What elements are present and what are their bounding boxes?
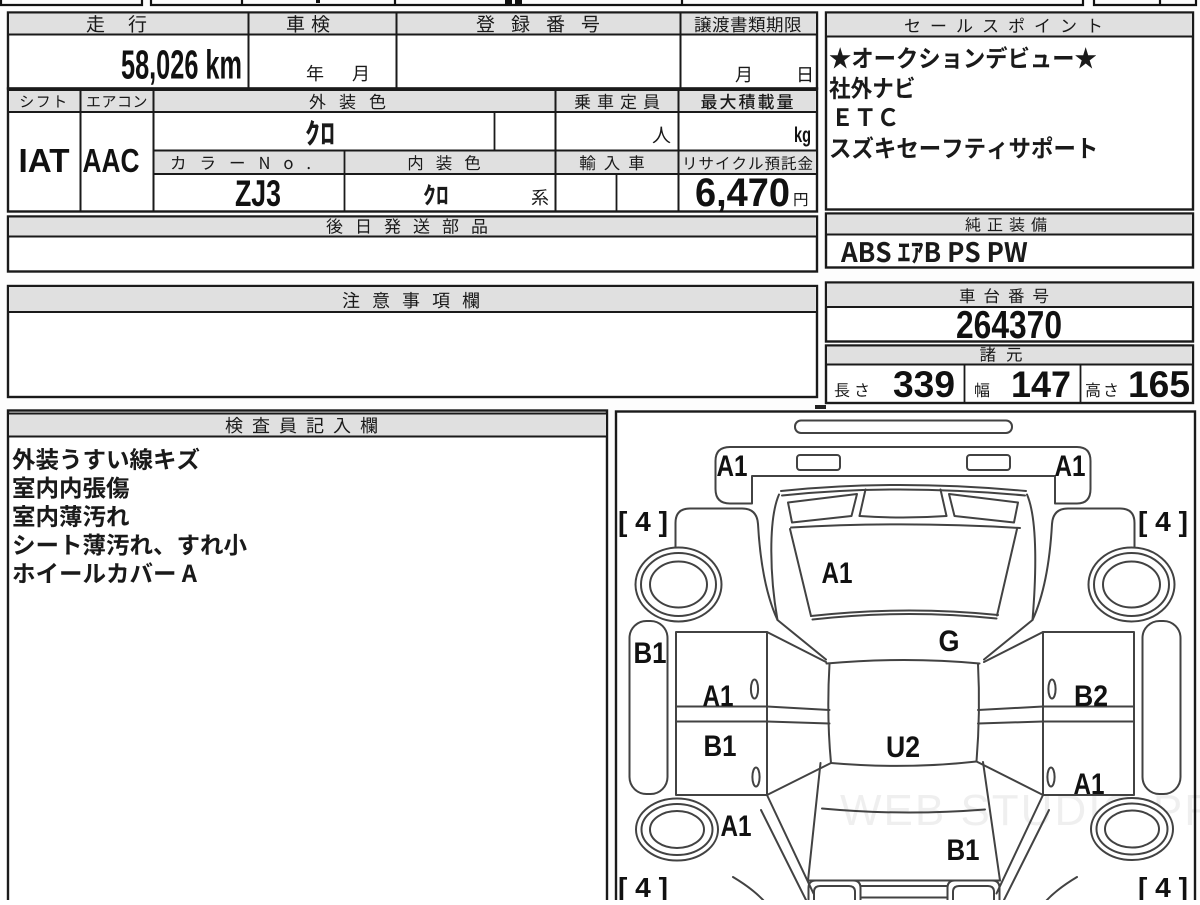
- svg-text:B1: B1: [634, 637, 667, 670]
- svg-text:[ 4 ]: [ 4 ]: [1138, 872, 1188, 900]
- svg-text:ZJ3: ZJ3: [235, 173, 281, 214]
- svg-text:264370: 264370: [956, 304, 1062, 347]
- svg-text:[ 4 ]: [ 4 ]: [1138, 506, 1188, 537]
- svg-text:AAC: AAC: [83, 142, 140, 179]
- svg-text:[ 4 ]: [ 4 ]: [618, 872, 668, 900]
- svg-text:B2: B2: [1074, 680, 1108, 713]
- svg-text:A1: A1: [703, 680, 734, 713]
- svg-text:165: 165: [1128, 364, 1190, 405]
- svg-text:B1: B1: [947, 834, 980, 867]
- svg-text:kg: kg: [794, 124, 811, 147]
- svg-text:147: 147: [1011, 364, 1071, 405]
- svg-text:[ 4 ]: [ 4 ]: [618, 506, 668, 537]
- svg-text:A1: A1: [1074, 768, 1105, 801]
- svg-text:G: G: [939, 625, 960, 658]
- svg-text:58,026 km: 58,026 km: [121, 42, 242, 88]
- svg-text:B1: B1: [704, 730, 737, 763]
- svg-text:A1: A1: [717, 450, 748, 483]
- svg-text:U2: U2: [886, 731, 920, 764]
- svg-text:339: 339: [893, 364, 955, 405]
- svg-text:A1: A1: [822, 557, 853, 590]
- svg-text:IAT: IAT: [19, 142, 70, 179]
- svg-text:6,470: 6,470: [695, 171, 790, 215]
- svg-text:A1: A1: [721, 810, 752, 843]
- svg-text:A1: A1: [1055, 450, 1086, 483]
